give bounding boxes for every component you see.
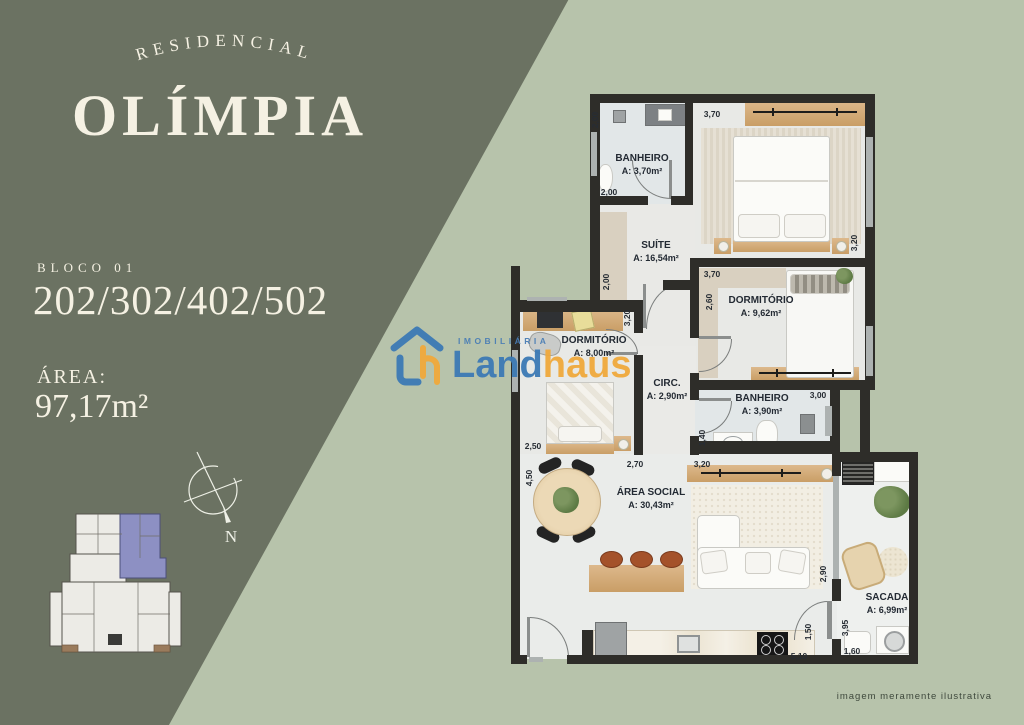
dim-sacada-left: 3,95 <box>840 620 850 637</box>
sacada-door-leaf <box>827 601 832 639</box>
watermark-brand-part2: haus <box>543 344 632 386</box>
label-sacada: SACADA A: 6,99m² <box>866 592 909 615</box>
banheiro2-niche <box>825 406 832 436</box>
sofa-pillow-3 <box>777 549 806 575</box>
dim-banheiro1-bottom: 2,00 <box>601 187 618 197</box>
grill <box>842 459 874 485</box>
suite-window <box>866 137 873 227</box>
wall-sacada-bottom <box>835 655 918 664</box>
sacada-plant <box>874 486 910 518</box>
wall-dorm2-left-upper <box>690 258 699 338</box>
suite-pillow-right <box>784 214 826 238</box>
bar-stool-2 <box>630 551 653 568</box>
watermark-brand-part1: Land <box>452 344 543 386</box>
wall-top <box>590 94 875 103</box>
banheiro1-sink <box>658 109 672 121</box>
wall-dorm2-bottom <box>690 380 875 390</box>
wall-banheiro2-bottom <box>690 441 840 454</box>
wall-suite-circ-stub <box>663 280 690 290</box>
wall-banheiro1-right <box>685 94 693 204</box>
dim-dorm2-top: 3,70 <box>704 269 721 279</box>
area-label: ÁREA: <box>37 366 107 389</box>
dorm2-window <box>866 326 873 376</box>
label-circ: CIRC. A: 2,90m² <box>647 378 688 401</box>
bar-stool-1 <box>600 551 623 568</box>
cooktop-burner-1 <box>761 635 771 645</box>
dim-suite-top: 3,70 <box>704 109 721 119</box>
wall-sacada-right <box>909 452 918 664</box>
label-banheiro2: BANHEIRO A: 3,90m² <box>735 393 788 416</box>
cooktop-burner-4 <box>774 645 784 655</box>
suite-lamp-left <box>718 241 729 252</box>
dorm2-wardrobe-rail <box>759 372 851 374</box>
bar-counter <box>589 565 684 592</box>
dim-living-top-right: 3,20 <box>694 459 711 469</box>
dim-living-top-left: 2,70 <box>627 459 644 469</box>
area-value: 97,17m² <box>35 388 148 426</box>
wall-sacada-top <box>835 452 918 462</box>
label-suite: SUÍTE A: 16,54m² <box>633 240 679 263</box>
keyplan <box>48 506 183 658</box>
suite-door-leaf <box>643 284 646 328</box>
keyplan-highlighted-unit <box>120 514 166 578</box>
compass-north-label: N <box>225 527 237 546</box>
flyer-canvas: RESIDENCIAL OLÍMPIA BLOCO 01 202/302/402… <box>0 0 1024 725</box>
entrance-sill <box>529 657 543 662</box>
washer-door <box>884 631 905 652</box>
watermark-brand: Landhaus <box>452 346 631 384</box>
banheiro1-window <box>591 132 597 176</box>
wall-sacada-left-lower <box>832 639 841 664</box>
sofa-pillow-1 <box>700 549 729 574</box>
dim-suite-corridor: 2,00 <box>601 274 611 291</box>
house-logo-icon <box>390 324 444 388</box>
dim-kitchen-bottom: 5,10 <box>791 651 808 661</box>
dorm1-top-window <box>527 297 567 301</box>
compass-icon: N <box>176 444 254 548</box>
disclaimer-text: imagem meramente ilustrativa <box>837 691 992 702</box>
banheiro2-door-leaf <box>699 398 731 401</box>
dim-banheiro2-left: 1,40 <box>697 430 707 447</box>
arc-title-text: RESIDENCIAL <box>133 31 316 64</box>
dim-suite-right: 3,20 <box>849 235 859 252</box>
banheiro2-shower-head <box>800 414 815 434</box>
cooktop-burner-2 <box>774 635 784 645</box>
wall-sacada-left-mid <box>832 579 841 601</box>
label-area-social: ÁREA SOCIAL A: 30,43m² <box>617 487 686 510</box>
tv-panel-rail <box>701 472 801 474</box>
wall-dorm1-right-lower <box>634 355 643 455</box>
dim-sacada-bottom: 1,60 <box>844 646 861 656</box>
dining-plant <box>553 487 579 513</box>
suite-pillow-left <box>738 214 780 238</box>
dim-living-left: 4,50 <box>524 470 534 487</box>
suite-wardrobe-rail <box>753 111 857 113</box>
wall-banheiro1-bottom <box>590 196 648 205</box>
svg-text:RESIDENCIAL: RESIDENCIAL <box>133 31 316 64</box>
bloco-label: BLOCO 01 <box>37 260 137 276</box>
wall-notch-right <box>860 380 870 454</box>
fridge <box>595 622 627 656</box>
label-banheiro-suite: BANHEIRO A: 3,70m² <box>615 153 668 176</box>
dim-banheiro2-right: 3,00 <box>810 390 827 400</box>
sofa-pillow-2 <box>745 552 771 574</box>
dim-living-right: 2,90 <box>818 566 828 583</box>
sacada-glass <box>833 476 839 579</box>
dorm1-lamp <box>618 439 629 450</box>
agency-watermark: IMOBILIÁRIA Landhaus <box>390 324 631 388</box>
unit-numbers: 202/302/402/502 <box>33 276 328 324</box>
bar-stool-3 <box>660 551 683 568</box>
suite-lamp-right <box>836 241 847 252</box>
entrance-door-leaf <box>527 617 530 657</box>
wall-kitchen-stub <box>582 630 593 660</box>
wall-bottom <box>567 655 851 664</box>
dim-dorm1-bottom: 2,50 <box>525 441 542 451</box>
dim-dorm2-left: 2,60 <box>704 294 714 311</box>
exterior-notch <box>840 390 860 441</box>
dorm2-plant <box>836 268 853 284</box>
dim-banheiro1-left: 2,00 <box>590 112 600 129</box>
wall-sacada-left-upper <box>832 452 841 476</box>
suite-bed-fold <box>735 180 828 182</box>
wall-banheiro1-bottom-stub <box>671 196 693 205</box>
dorm1-pillow <box>558 426 602 442</box>
wall-bottom-left <box>511 655 527 664</box>
dorm2-door-leaf <box>699 336 731 339</box>
banheiro1-shower-head <box>613 110 626 123</box>
cooktop-burner-3 <box>761 645 771 655</box>
kitchen-sink <box>677 635 700 653</box>
page-title: OLÍMPIA <box>18 82 422 149</box>
suite-wardrobe <box>745 100 865 126</box>
dim-kitchen-right: 1,50 <box>803 624 813 641</box>
label-dormitorio2: DORMITÓRIO A: 9,62m² <box>729 295 794 318</box>
banheiro1-door-leaf <box>669 160 672 198</box>
wall-dorm2-top <box>690 258 875 267</box>
wall-dorm1-right-upper <box>634 300 643 333</box>
